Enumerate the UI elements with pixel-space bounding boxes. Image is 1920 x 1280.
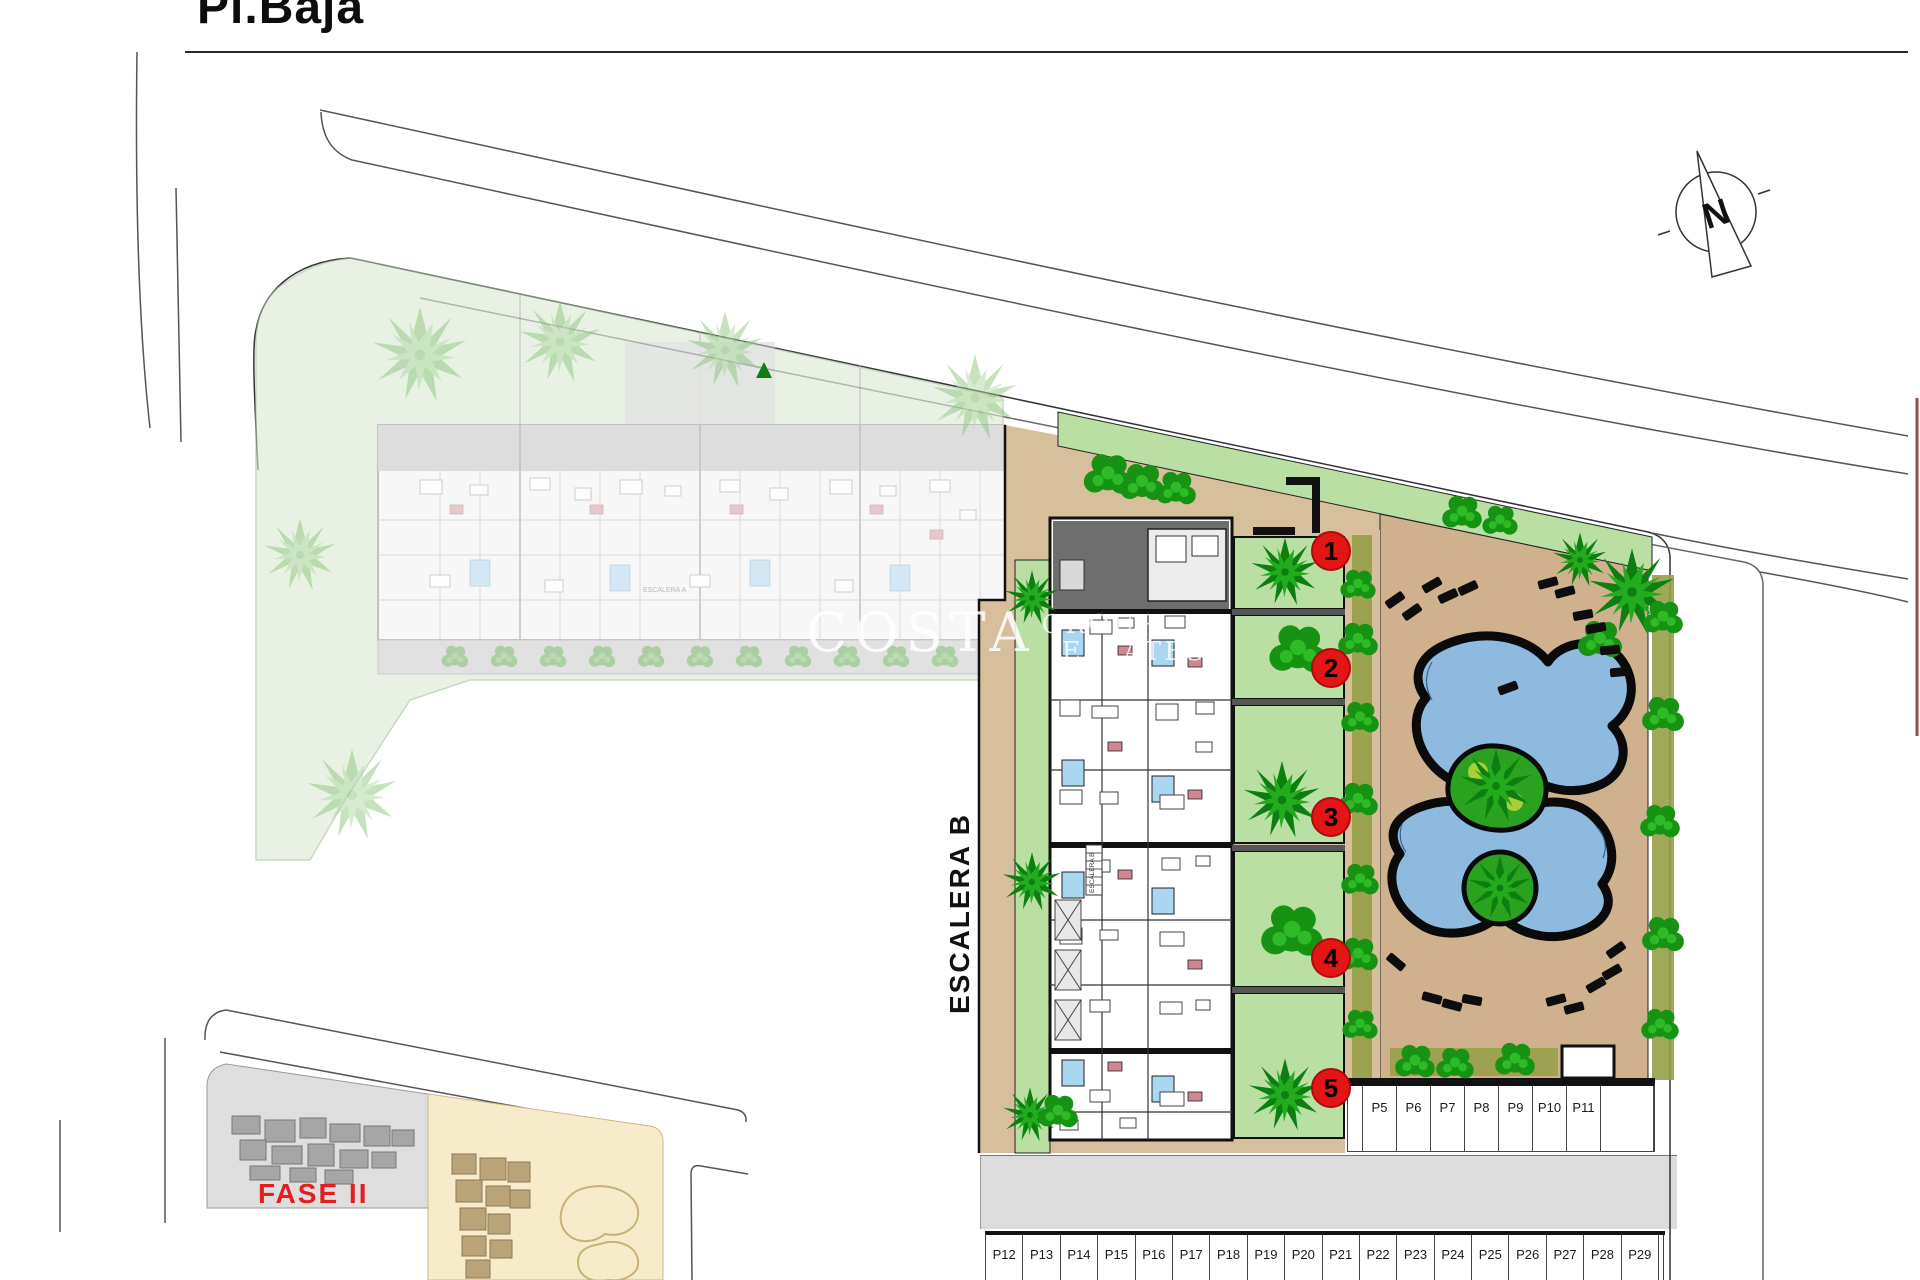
north-label: N <box>1697 190 1734 237</box>
southwest-road-fork <box>691 1166 748 1280</box>
parking-stall-label: P18 <box>1210 1235 1246 1262</box>
parking-stall-label: P24 <box>1435 1235 1471 1262</box>
inset-overview <box>207 1064 663 1280</box>
parking-stall-P5: P5 <box>1363 1086 1397 1151</box>
road-branch-1 <box>1652 533 1908 579</box>
parking-stall-label: P25 <box>1472 1235 1508 1262</box>
parking-stall-label: P13 <box>1023 1235 1059 1262</box>
parking-stall-P25: P25 <box>1472 1235 1509 1280</box>
parking-stall-label: P16 <box>1136 1235 1172 1262</box>
parking-stall-P20: P20 <box>1285 1235 1322 1280</box>
north-compass: N <box>1658 151 1770 277</box>
parking-stall-empty <box>1659 1235 1664 1280</box>
site-plan-canvas: ESCALERA A <box>0 0 1920 1280</box>
road-branch-2 <box>1760 572 1908 602</box>
parking-stall-P29: P29 <box>1622 1235 1659 1280</box>
parking-stall-label: P12 <box>986 1235 1022 1262</box>
parking-stall-label: P17 <box>1173 1235 1209 1262</box>
parking-stall-label: P20 <box>1285 1235 1321 1262</box>
parking-stall-label: P14 <box>1061 1235 1097 1262</box>
escalera-b-small-label: ESCALERA B <box>1089 853 1096 893</box>
parking-stall-label: P15 <box>1098 1235 1134 1262</box>
parking-stall-label: P23 <box>1397 1235 1433 1262</box>
escalera-a-label: ESCALERA A <box>643 587 687 594</box>
parking-stall-P17: P17 <box>1173 1235 1210 1280</box>
parking-stall-P22: P22 <box>1360 1235 1397 1280</box>
parking-stall-label: P29 <box>1622 1235 1658 1262</box>
parking-stall-empty <box>1601 1086 1654 1151</box>
parking-stall-P18: P18 <box>1210 1235 1247 1280</box>
escalera-b-label: ESCALERA B <box>944 813 976 1014</box>
pool-equipment-room <box>1562 1046 1614 1078</box>
building-escalera-b: ESCALERA B <box>1050 518 1232 1140</box>
title-underline <box>185 51 1908 53</box>
parking-stall-P6: P6 <box>1397 1086 1431 1151</box>
parking-stall-P19: P19 <box>1248 1235 1285 1280</box>
parking-stall-P9: P9 <box>1499 1086 1533 1151</box>
west-road-line-1 <box>137 52 150 428</box>
unit-badge-5: 5 <box>1311 1068 1351 1108</box>
parking-stall-P11: P11 <box>1567 1086 1601 1151</box>
parking-stall-label: P26 <box>1509 1235 1545 1262</box>
parking-stall-P12: P12 <box>986 1235 1023 1280</box>
parking-stall-label: P7 <box>1431 1086 1464 1115</box>
west-road-line-2 <box>176 188 181 442</box>
sun-lounger-icon <box>1600 645 1621 656</box>
parking-stall-label: P6 <box>1397 1086 1430 1115</box>
parking-stall-P10: P10 <box>1533 1086 1567 1151</box>
parking-stall-label: P10 <box>1533 1086 1566 1115</box>
parking-stall-P7: P7 <box>1431 1086 1465 1151</box>
parking-stall-label: P27 <box>1547 1235 1583 1262</box>
elevators <box>1055 900 1081 1040</box>
parking-stall-label: P22 <box>1360 1235 1396 1262</box>
unit-badge-4: 4 <box>1311 938 1351 978</box>
parking-stall-P23: P23 <box>1397 1235 1434 1280</box>
parking-stall-label: P11 <box>1567 1086 1600 1115</box>
parking-stall-label: P21 <box>1323 1235 1359 1262</box>
unit-badge-1: 1 <box>1311 531 1351 571</box>
central-complex: ESCALERA B <box>979 412 1674 1153</box>
faded-complex-escalera-a: ESCALERA A <box>256 258 1005 860</box>
parking-stall-P26: P26 <box>1509 1235 1546 1280</box>
parking-stall-P28: P28 <box>1584 1235 1621 1280</box>
parking-stall-P24: P24 <box>1435 1235 1472 1280</box>
parking-row-p12-p29: P12P13P14P15P16P17P18P19P20P21P22P23P24P… <box>985 1231 1665 1280</box>
bush-icon <box>1643 601 1683 633</box>
parking-stall-P14: P14 <box>1061 1235 1098 1280</box>
parking-stall-label: P28 <box>1584 1235 1620 1262</box>
unit-badge-2: 2 <box>1311 648 1351 688</box>
fase-ii-label: FASE II <box>258 1178 368 1210</box>
page-title: Pl.Baja <box>197 0 364 35</box>
parking-stall-label: P9 <box>1499 1086 1532 1115</box>
parking-stall-P8: P8 <box>1465 1086 1499 1151</box>
parking-stall-label: P5 <box>1363 1086 1396 1115</box>
parking-row-p5-p11: P5P6P7P8P9P10P11 <box>1347 1082 1655 1152</box>
plot-5 <box>1234 993 1344 1138</box>
parking-stall-label: P19 <box>1248 1235 1284 1262</box>
parking-stall-P15: P15 <box>1098 1235 1135 1280</box>
parking-stall-P21: P21 <box>1323 1235 1360 1280</box>
parking-stall-P27: P27 <box>1547 1235 1584 1280</box>
parking-stall-P13: P13 <box>1023 1235 1060 1280</box>
parking-stall-empty <box>1348 1086 1363 1151</box>
parking-stall-label: P8 <box>1465 1086 1498 1115</box>
parking-stall-P16: P16 <box>1136 1235 1173 1280</box>
sun-lounger-icon <box>1610 667 1631 678</box>
unit-badge-3: 3 <box>1311 797 1351 837</box>
